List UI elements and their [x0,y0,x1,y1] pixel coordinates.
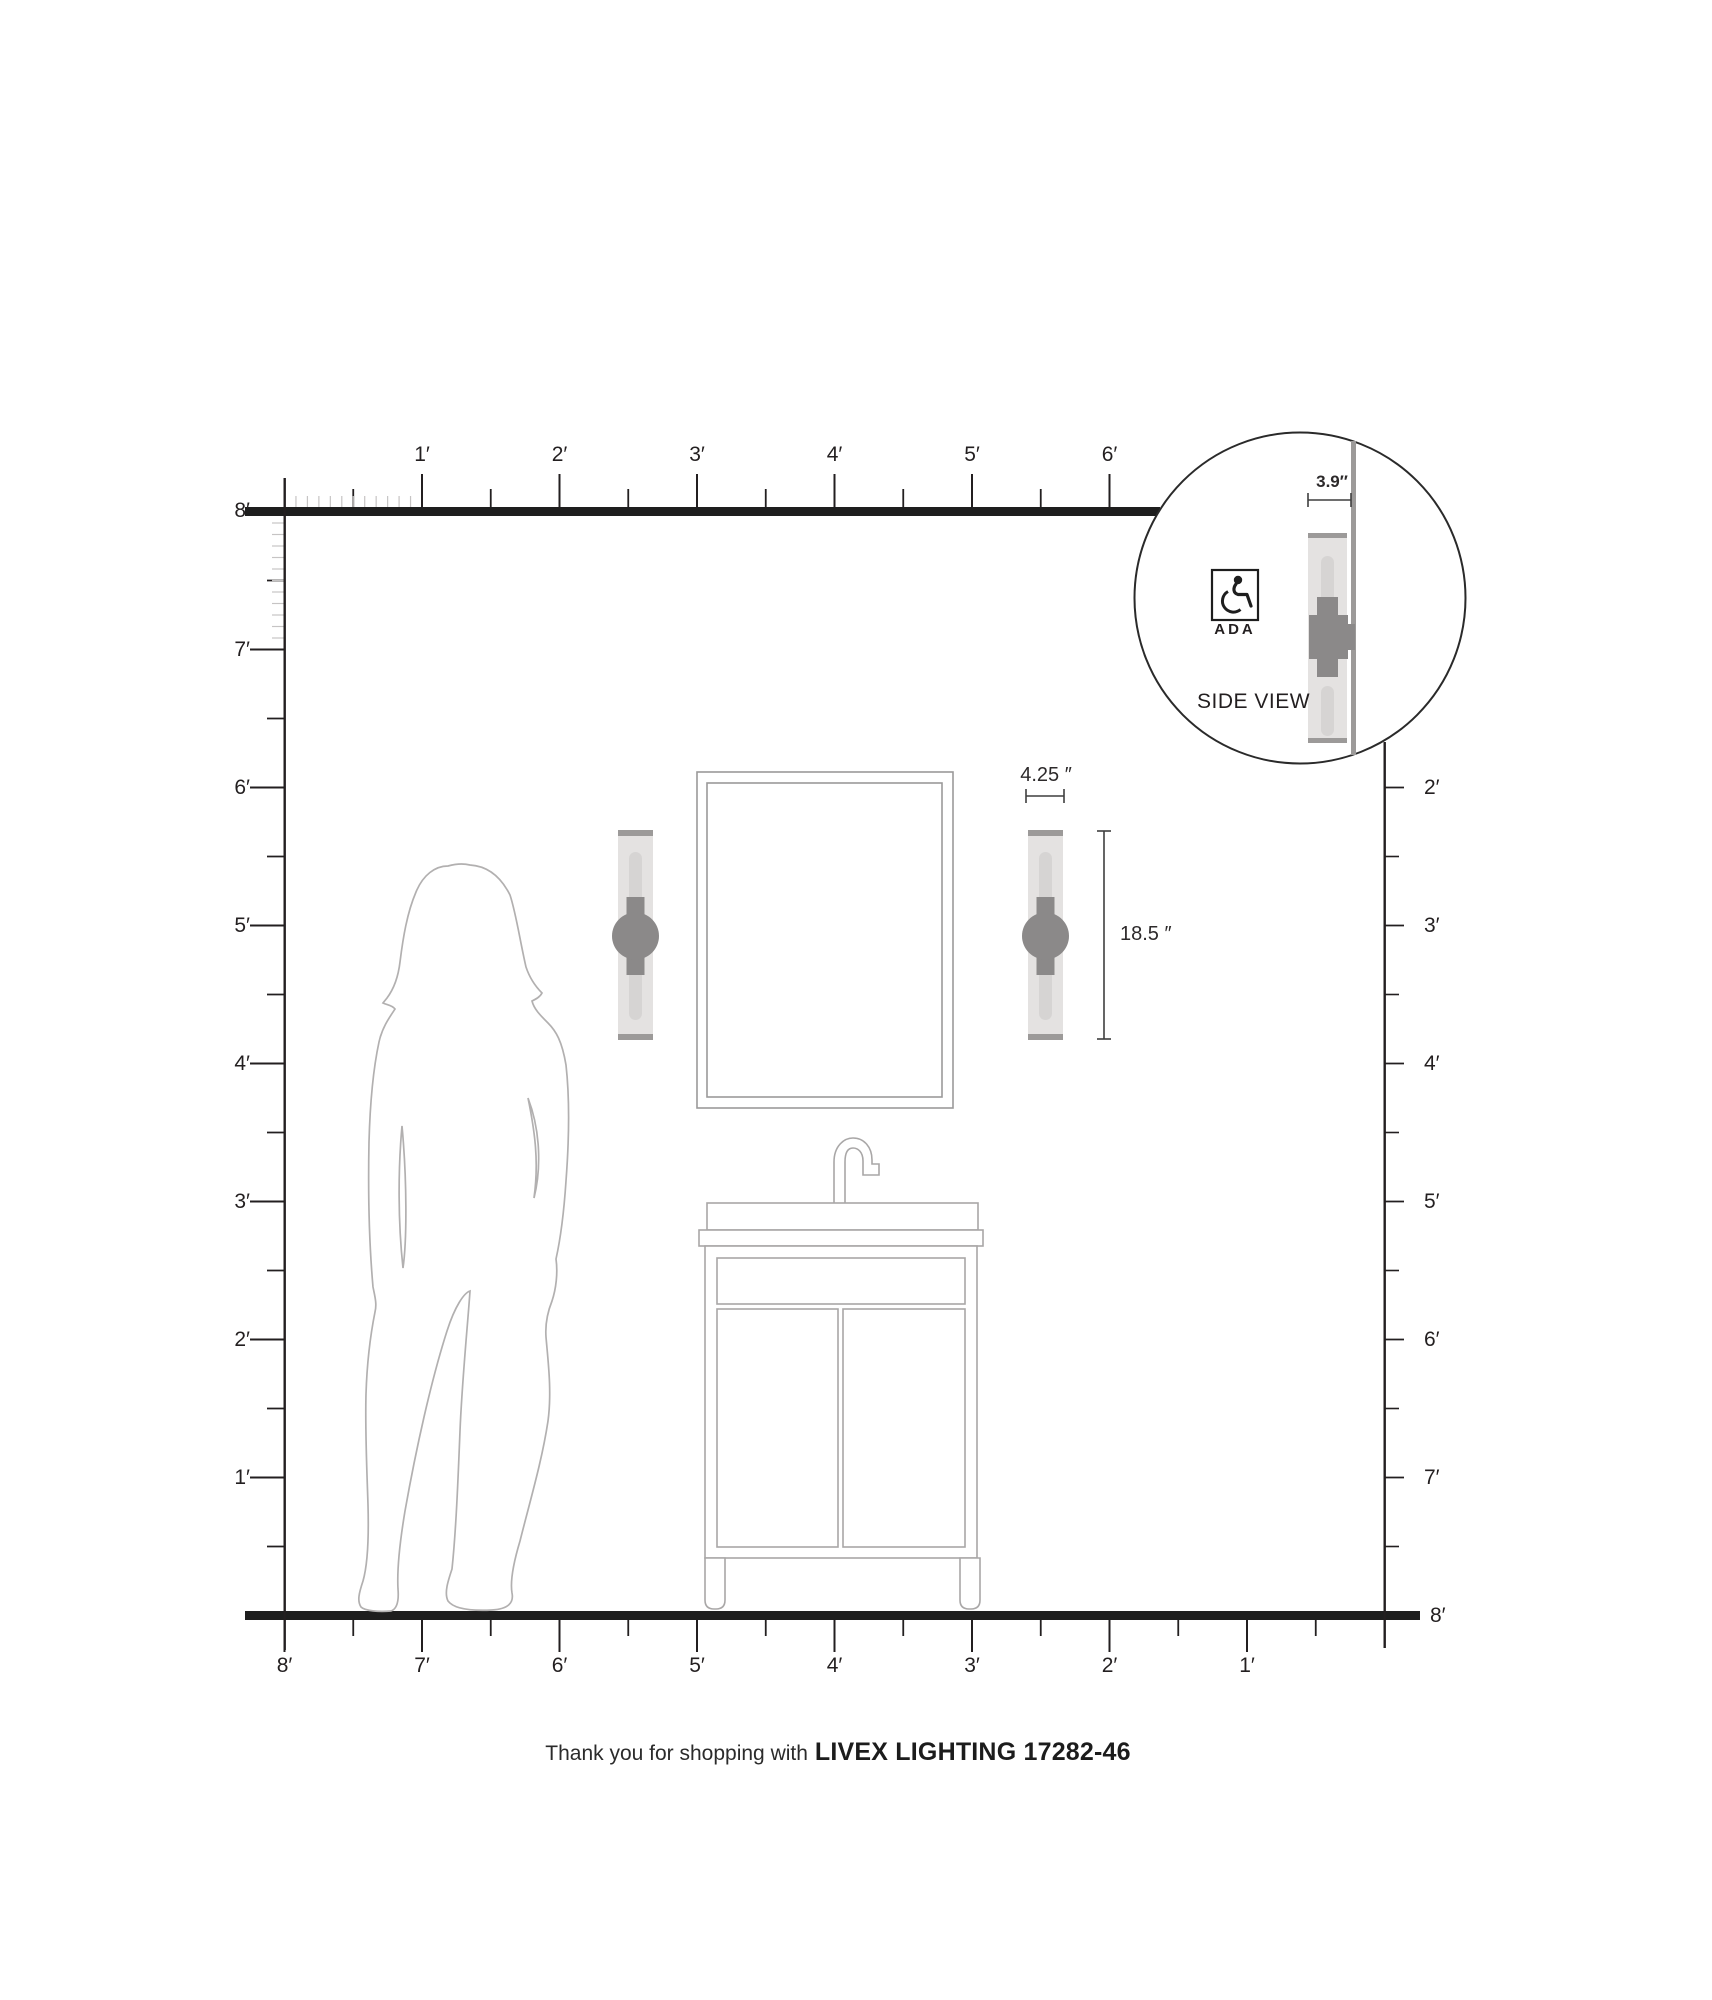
depth-dimension-label: 3.9″ [1316,472,1348,492]
width-dimension-label: 4.25 ″ [1020,764,1072,787]
right-sconce-mount [1022,913,1069,960]
right-sconce [1022,830,1069,1040]
side-view-label: SIDE VIEW [1197,690,1310,714]
right-ruler-label-5ft: 5′ [1424,1191,1440,1213]
left-ruler-line [284,478,286,1650]
left-sconce [612,830,659,1040]
cabinet-left-door [717,1309,838,1547]
vanity [699,1138,983,1609]
left-ruler-label-3ft: 3′ [234,1191,250,1213]
bottom-ruler-label-4ft: 4′ [827,1655,843,1677]
left-sconce-mount [612,913,659,960]
left-ruler-label-2ft: 2′ [234,1329,250,1351]
dimension-diagram: 1′ 2′ 3′ 4′ 5′ 6′ 8′ 7′ 6′ 5′ 4′ 3′ 2′ 1… [0,0,1712,2000]
sink-backsplash [707,1203,978,1230]
ceiling-line [245,507,1160,516]
cabinet-right-foot [960,1558,980,1609]
bottom-ruler-label-5ft: 5′ [689,1655,705,1677]
cabinet-top-rail [717,1258,965,1304]
bottom-ruler-label-2ft: 2′ [1102,1655,1118,1677]
person-silhouette [359,864,569,1611]
left-ruler-label-6ft: 6′ [234,777,250,799]
right-ruler-label-2ft: 2′ [1424,777,1440,799]
bottom-ruler-label-6ft: 6′ [552,1655,568,1677]
bottom-ruler-label-1ft: 1′ [1239,1655,1255,1677]
mirror [697,772,953,1108]
footer-brand-model-text: LIVEX LIGHTING 17282-46 [815,1738,1131,1767]
right-ruler-label-6ft: 6′ [1424,1329,1440,1351]
right-ruler-line [1384,742,1386,1648]
width-dimension-line [1026,789,1064,803]
top-ruler-label-5ft: 5′ [964,444,980,466]
left-sconce-bottom-cap [618,1034,653,1040]
right-sconce-top-cap [1028,830,1063,836]
left-ruler-label-4ft: 4′ [234,1053,250,1075]
countertop [699,1230,983,1246]
top-ruler-label-2ft: 2′ [552,444,568,466]
top-ruler-label-6ft: 6′ [1102,444,1118,466]
mirror-inner-frame [707,783,942,1097]
bottom-ruler-label-3ft: 3′ [964,1655,980,1677]
footer-thank-you-text: Thank you for shopping with [545,1742,808,1766]
inset-wall-line [1351,441,1356,755]
top-ruler-label-1ft: 1′ [414,444,430,466]
side-view-wall-bracket [1346,624,1355,650]
height-dimension-line [1097,831,1111,1039]
height-dimension-label: 18.5 ″ [1120,923,1172,946]
footer: Thank you for shopping with LIVEX LIGHTI… [545,1738,1130,1767]
cabinet-right-door [843,1309,965,1547]
bottom-ruler-label-7ft: 7′ [414,1655,430,1677]
diagram-drawing [0,0,1712,2000]
left-sconce-top-cap [618,830,653,836]
left-ruler-label-5ft: 5′ [234,915,250,937]
cabinet-left-foot [705,1558,725,1609]
right-ruler-label-8ft: 8′ [1430,1605,1446,1627]
left-ruler-label-1ft: 1′ [234,1467,250,1489]
person-outline [359,864,569,1611]
left-ruler-label-7ft: 7′ [234,639,250,661]
top-ruler-label-3ft: 3′ [689,444,705,466]
right-sconce-bottom-cap [1028,1034,1063,1040]
right-ruler-label-4ft: 4′ [1424,1053,1440,1075]
bottom-ruler-label-8ft: 8′ [277,1655,293,1677]
right-ruler-label-7ft: 7′ [1424,1467,1440,1489]
ada-label: ADA [1214,621,1256,638]
left-ruler-label-8ft: 8′ [234,500,250,522]
right-ruler-label-3ft: 3′ [1424,915,1440,937]
ada-symbol [1212,570,1258,620]
floor-line [245,1611,1420,1620]
top-ruler-label-4ft: 4′ [827,444,843,466]
